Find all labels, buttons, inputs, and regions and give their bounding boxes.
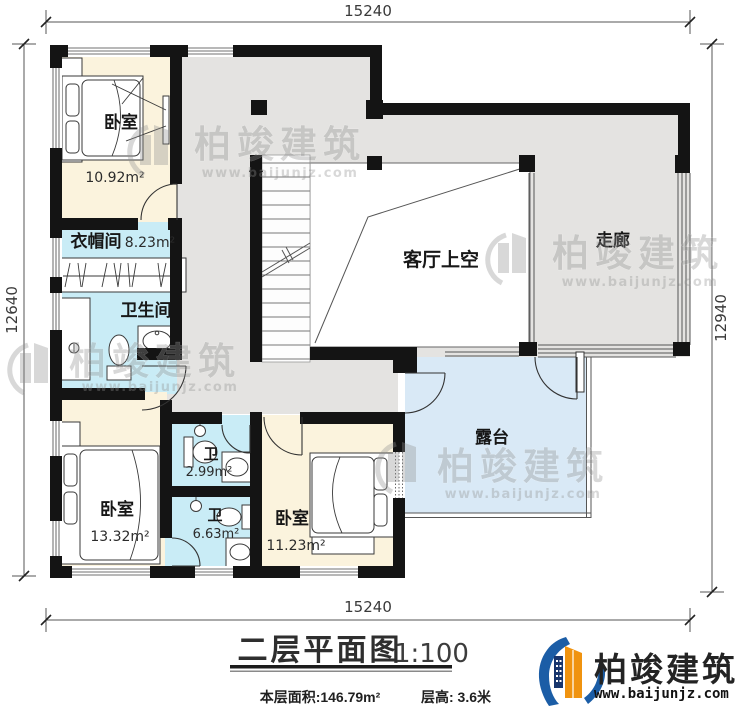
- watermark-url: www.baijunjz.com: [202, 166, 359, 181]
- dimension-bottom: 15240: [41, 598, 695, 632]
- pillow: [64, 492, 77, 524]
- floor-plan-canvas: 卧室 10.92m² 衣帽间 8.23m² 卫生间 客厅上空 走廊 卧室 13.…: [0, 0, 750, 712]
- window: [68, 45, 150, 57]
- room-area-cloakroom: 8.23m²: [125, 235, 175, 251]
- room-area-bedroom-sw: 13.32m²: [90, 529, 149, 545]
- sink-basin-icon: [230, 544, 250, 560]
- room-label-cloakroom: 衣帽间: [71, 231, 122, 251]
- watermark-url: www.baijunjz.com: [562, 275, 719, 290]
- dimension-top: 15240: [41, 2, 695, 34]
- dimension-right-value: 12940: [712, 294, 730, 342]
- wardrobe-body: [58, 258, 186, 292]
- wall-segment: [393, 498, 405, 578]
- pillow: [66, 84, 79, 116]
- wall-segment: [50, 218, 138, 230]
- watermark-building-icon: [10, 343, 48, 393]
- wall-segment: [160, 486, 262, 497]
- pillow: [64, 454, 77, 486]
- dimension-bottom-value: 15240: [344, 598, 392, 616]
- dimension-left: 12640: [3, 39, 36, 581]
- logo-brand-text: 柏竣建筑: [594, 651, 738, 688]
- logo-url-text: www.baijunjz.com: [594, 686, 729, 702]
- room-label-living-void: 客厅上空: [403, 248, 479, 271]
- room-label-bedroom-nw: 卧室: [104, 112, 138, 132]
- brand-logo: 柏竣建筑 www.baijunjz.com: [539, 637, 738, 706]
- room-label-wc1: 卫: [203, 446, 218, 463]
- wall-segment: [160, 566, 172, 578]
- watermark-url: www.baijunjz.com: [82, 380, 239, 395]
- window: [195, 566, 233, 578]
- wall-segment: [370, 103, 690, 115]
- room-label-bedroom-sw: 卧室: [100, 499, 134, 519]
- watermark-url: www.baijunjz.com: [445, 487, 602, 502]
- wall-segment: [160, 400, 172, 538]
- window: [188, 45, 233, 57]
- floor-height-note: 层高: 3.6米: [421, 689, 492, 705]
- window: [50, 521, 62, 556]
- column: [519, 342, 537, 356]
- watermark: 柏竣建筑 www.baijunjz.com: [10, 340, 241, 395]
- mattress: [312, 457, 374, 533]
- window: [50, 293, 62, 330]
- column: [519, 155, 535, 172]
- room-area-bedroom-nw: 10.92m²: [85, 170, 144, 186]
- drawing-title: 二层平面图: [238, 634, 403, 667]
- wall-segment: [170, 57, 182, 184]
- room-label-wc2: 卫: [207, 507, 222, 524]
- window: [50, 421, 62, 456]
- terrace-bottom-railing: [403, 513, 592, 518]
- wall-segment: [250, 155, 262, 362]
- room-area-wc1: 2.99m²: [186, 465, 233, 480]
- title-block: 二层平面图 1:100 本层面积:146.79m² 层高: 3.6米: [230, 634, 492, 705]
- title-underline-thick: [230, 665, 452, 669]
- column: [251, 100, 267, 115]
- column: [367, 156, 382, 170]
- drawing-scale: 1:100: [394, 639, 469, 669]
- wall-segment: [300, 412, 405, 424]
- pillow: [374, 494, 387, 526]
- shower-head-icon: [191, 501, 202, 512]
- room-label-bathroom: 卫生间: [121, 300, 172, 320]
- title-underline-thin: [230, 671, 452, 673]
- floor-area-note: 本层面积:146.79m²: [260, 689, 381, 705]
- dimension-left-value: 12640: [3, 286, 21, 334]
- watermark-brand: 柏竣建筑: [69, 340, 241, 382]
- toilet-tank: [184, 437, 193, 467]
- dimension-right: 12940: [700, 39, 730, 597]
- window: [72, 566, 150, 578]
- column: [366, 100, 383, 119]
- room-area-bedroom-s: 11.23m²: [266, 538, 325, 554]
- window: [300, 566, 358, 578]
- dimension-top-value: 15240: [344, 2, 392, 20]
- wardrobe: [58, 258, 186, 292]
- watermark-brand: 柏竣建筑: [437, 445, 609, 487]
- window: [50, 68, 62, 148]
- column: [673, 342, 690, 356]
- wall-segment: [310, 347, 417, 360]
- pillow: [66, 121, 79, 153]
- watermark-brand: 柏竣建筑: [552, 232, 724, 274]
- window: [50, 238, 62, 277]
- room-label-bedroom-s: 卧室: [275, 508, 309, 528]
- watermark-brand: 柏竣建筑: [194, 123, 366, 165]
- column: [675, 155, 690, 173]
- faucet-dot: [155, 331, 159, 335]
- room-label-terrace: 露台: [475, 427, 509, 447]
- room-area-wc2: 6.63m²: [193, 527, 240, 542]
- shower-head-icon: [195, 426, 206, 437]
